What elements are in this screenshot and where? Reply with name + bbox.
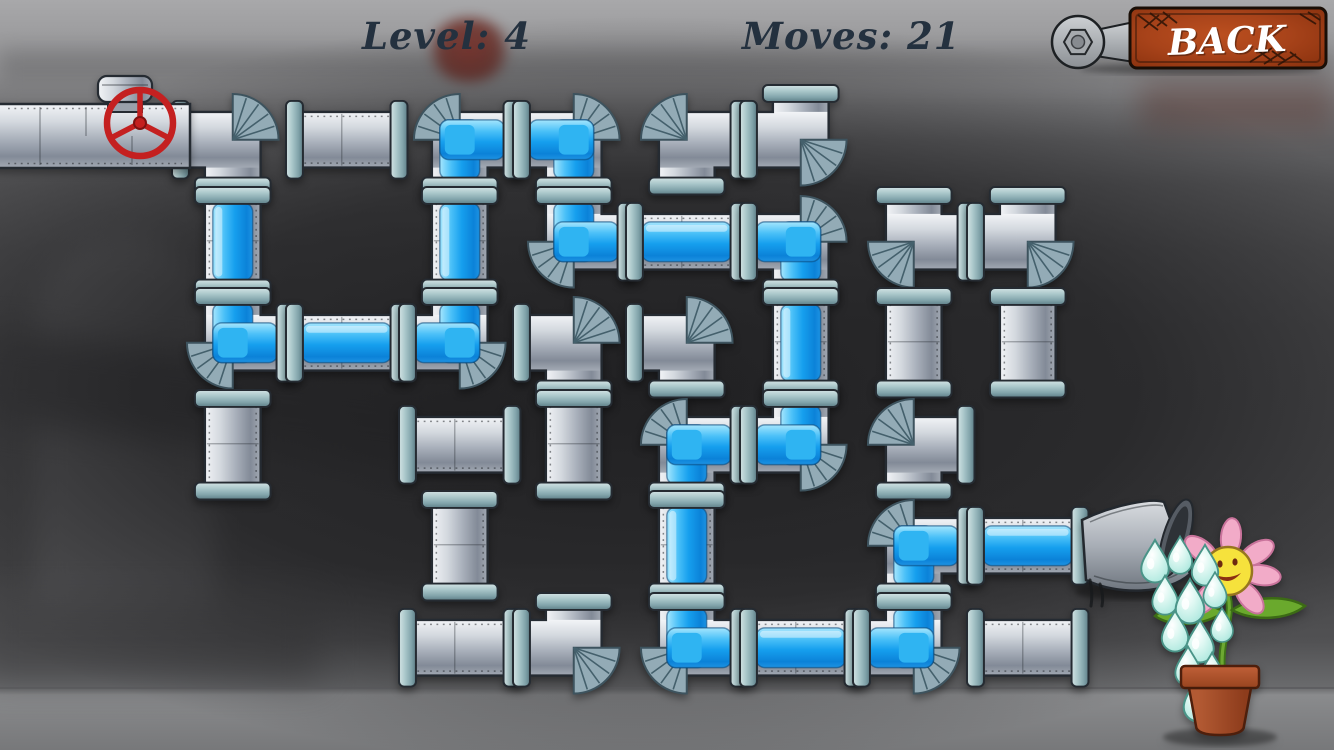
pipe-elbow-up-left-filled[interactable]: [857, 597, 971, 699]
pipe-elbow-left-down[interactable]: [517, 292, 631, 394]
wrench-icon: [1052, 16, 1134, 68]
pipe-straight-h-filled[interactable]: [630, 191, 744, 293]
pipe-straight-v[interactable]: [176, 394, 290, 496]
pipe-elbow-right-down[interactable]: [857, 394, 971, 496]
pipe-straight-v[interactable]: [517, 394, 631, 496]
pipe-straight-v-filled[interactable]: [403, 191, 517, 293]
water-source: [0, 60, 230, 210]
flower-pot: [1181, 666, 1259, 735]
pipe-straight-h[interactable]: [403, 597, 517, 699]
pipe-elbow-down-right-filled[interactable]: [857, 495, 971, 597]
goal-area: [1060, 480, 1334, 750]
pipe-straight-v[interactable]: [971, 292, 1085, 394]
pipe-elbow-up-left-filled[interactable]: [403, 292, 517, 394]
pipe-elbow-up-right-filled[interactable]: [517, 191, 631, 293]
pipe-straight-h-filled[interactable]: [744, 597, 858, 699]
pipe-elbow-left-down-filled[interactable]: [517, 89, 631, 191]
level-label: Level: 4: [362, 14, 531, 58]
pipe-elbow-right-down-filled[interactable]: [403, 89, 517, 191]
pipe-grid: [176, 89, 1084, 698]
pipe-straight-h[interactable]: [290, 89, 404, 191]
pipe-elbow-right-down-filled[interactable]: [630, 394, 744, 496]
pipe-straight-h[interactable]: [403, 394, 517, 496]
pipe-elbow-right-down[interactable]: [630, 89, 744, 191]
pipe-straight-v[interactable]: [403, 495, 517, 597]
pipe-straight-v-filled[interactable]: [630, 495, 744, 597]
water-drop: [1176, 579, 1205, 623]
pipe-elbow-up-left[interactable]: [744, 89, 858, 191]
pipe-elbow-up-right[interactable]: [857, 191, 971, 293]
pipe-elbow-up-left[interactable]: [971, 191, 1085, 293]
pipe-straight-v[interactable]: [857, 292, 971, 394]
pipe-straight-v-filled[interactable]: [744, 292, 858, 394]
back-button[interactable]: BACK BACK: [1050, 2, 1334, 76]
moves-label: Moves: 21: [742, 14, 961, 58]
game-screen: Level: 4 Moves: 21: [0, 0, 1334, 750]
pipe-elbow-left-down[interactable]: [630, 292, 744, 394]
pipe-elbow-left-down-filled[interactable]: [744, 191, 858, 293]
pipe-straight-h-filled[interactable]: [290, 292, 404, 394]
pipe-elbow-up-left-filled[interactable]: [744, 394, 858, 496]
pipe-elbow-up-right-filled[interactable]: [176, 292, 290, 394]
pipe-elbow-up-right-filled[interactable]: [630, 597, 744, 699]
pipe-elbow-up-left[interactable]: [517, 597, 631, 699]
back-label: BACK: [1166, 18, 1288, 64]
